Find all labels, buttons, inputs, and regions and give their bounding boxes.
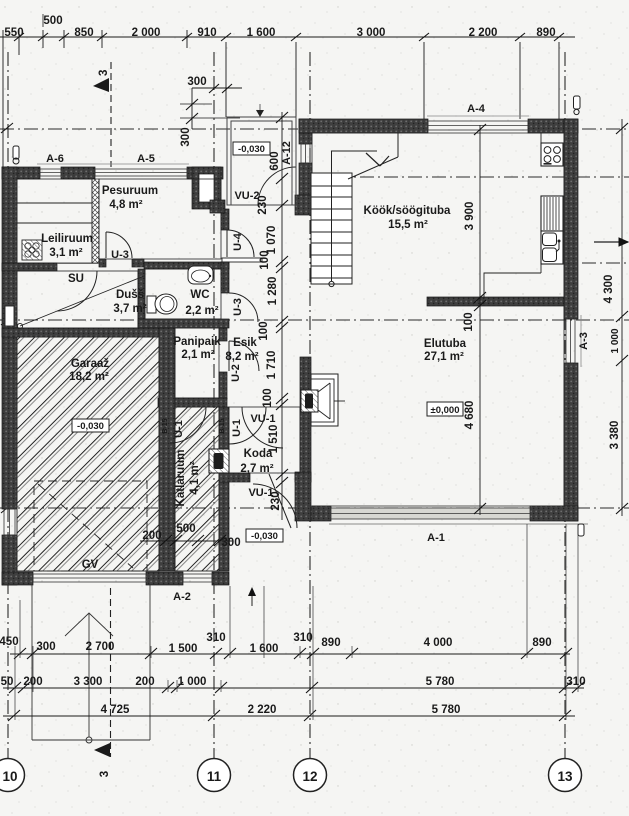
svg-text:1 500: 1 500 xyxy=(169,643,198,655)
svg-text:850: 850 xyxy=(74,27,93,39)
svg-text:-0,030: -0,030 xyxy=(238,144,265,155)
svg-text:1 510: 1 510 xyxy=(268,425,280,454)
svg-text:310: 310 xyxy=(293,632,312,644)
svg-text:1 710: 1 710 xyxy=(266,351,278,380)
svg-text:1 000: 1 000 xyxy=(610,328,621,353)
svg-text:2 200: 2 200 xyxy=(469,27,498,39)
svg-text:300: 300 xyxy=(180,127,192,146)
svg-text:U-1: U-1 xyxy=(231,419,243,437)
svg-text:U-1: U-1 xyxy=(173,420,185,438)
svg-text:100: 100 xyxy=(258,321,270,340)
svg-text:1 070: 1 070 xyxy=(266,226,278,255)
svg-text:12: 12 xyxy=(302,769,317,784)
svg-text:100: 100 xyxy=(463,312,475,331)
svg-text:U-4: U-4 xyxy=(232,232,244,251)
svg-text:2,2 m²: 2,2 m² xyxy=(185,305,218,317)
svg-text:5 780: 5 780 xyxy=(426,676,455,688)
svg-text:U-3: U-3 xyxy=(111,249,129,261)
svg-text:A-2: A-2 xyxy=(173,591,191,603)
svg-text:2,7 m²: 2,7 m² xyxy=(240,463,273,475)
svg-text:27,1 m²: 27,1 m² xyxy=(424,351,464,363)
svg-text:450: 450 xyxy=(0,636,19,648)
svg-text:15,5 m²: 15,5 m² xyxy=(388,219,428,231)
svg-text:1 000: 1 000 xyxy=(178,676,207,688)
svg-text:8,2 m²: 8,2 m² xyxy=(225,351,258,363)
svg-text:890: 890 xyxy=(321,637,340,649)
svg-text:50: 50 xyxy=(1,676,14,688)
svg-text:A-3: A-3 xyxy=(578,332,590,350)
svg-text:Elutuba: Elutuba xyxy=(424,338,467,350)
svg-text:A-1: A-1 xyxy=(427,532,445,544)
svg-text:910: 910 xyxy=(197,27,216,39)
svg-text:500: 500 xyxy=(176,523,195,535)
svg-text:200: 200 xyxy=(142,530,161,542)
svg-text:11: 11 xyxy=(207,769,222,784)
svg-text:Katlaruum: Katlaruum xyxy=(175,450,187,507)
svg-text:600: 600 xyxy=(269,151,281,170)
svg-text:550: 550 xyxy=(4,27,23,39)
svg-text:5 780: 5 780 xyxy=(432,704,461,716)
svg-text:3 900: 3 900 xyxy=(464,202,476,231)
svg-text:500: 500 xyxy=(43,15,62,27)
svg-text:300: 300 xyxy=(221,537,240,549)
svg-text:310: 310 xyxy=(206,632,225,644)
svg-text:200: 200 xyxy=(135,676,154,688)
svg-text:3 300: 3 300 xyxy=(74,676,103,688)
svg-text:3: 3 xyxy=(98,70,110,76)
svg-text:890: 890 xyxy=(532,637,551,649)
svg-text:2,1 m²: 2,1 m² xyxy=(181,349,214,361)
svg-text:B-15: B-15 xyxy=(219,418,226,433)
svg-text:4 725: 4 725 xyxy=(101,704,130,716)
svg-text:4,1 m²: 4,1 m² xyxy=(189,461,201,494)
svg-text:2 000: 2 000 xyxy=(132,27,161,39)
svg-text:WC: WC xyxy=(190,289,209,301)
svg-text:GV: GV xyxy=(82,559,99,571)
svg-text:3 000: 3 000 xyxy=(357,27,386,39)
svg-text:Köök/söögituba: Köök/söögituba xyxy=(364,205,451,217)
svg-text:230: 230 xyxy=(257,195,269,214)
svg-text:10: 10 xyxy=(2,769,17,784)
svg-text:300: 300 xyxy=(36,641,55,653)
svg-text:-0,030: -0,030 xyxy=(77,421,104,432)
svg-text:230: 230 xyxy=(270,491,282,510)
svg-text:Panipaik: Panipaik xyxy=(173,336,221,348)
svg-text:-0,030: -0,030 xyxy=(251,531,278,542)
svg-text:Garaaž: Garaaž xyxy=(71,358,110,370)
svg-text:VU-1: VU-1 xyxy=(250,413,275,425)
svg-text:3,1 m²: 3,1 m² xyxy=(49,247,82,259)
svg-text:A-5: A-5 xyxy=(137,153,155,165)
svg-text:4 300: 4 300 xyxy=(603,275,615,304)
svg-text:3: 3 xyxy=(99,771,111,777)
svg-text:U-3: U-3 xyxy=(232,298,244,316)
svg-text:U-2: U-2 xyxy=(230,364,242,382)
svg-text:A-4: A-4 xyxy=(467,103,486,115)
svg-text:4 680: 4 680 xyxy=(464,401,476,430)
svg-text:1 280: 1 280 xyxy=(267,277,279,306)
svg-text:300: 300 xyxy=(187,76,206,88)
svg-text:A-6: A-6 xyxy=(46,153,64,165)
svg-text:13: 13 xyxy=(557,769,573,784)
svg-text:SU: SU xyxy=(68,273,84,285)
svg-text:Pesuruum: Pesuruum xyxy=(102,185,158,197)
svg-text:3 380: 3 380 xyxy=(609,421,621,450)
svg-text:4,8 m²: 4,8 m² xyxy=(109,199,142,211)
svg-text:310: 310 xyxy=(566,676,585,688)
svg-text:Esik: Esik xyxy=(233,337,257,349)
svg-text:A-12: A-12 xyxy=(281,141,293,165)
svg-text:B-15: B-15 xyxy=(162,418,169,433)
svg-text:18,2 m²: 18,2 m² xyxy=(69,371,109,383)
svg-text:VU-2: VU-2 xyxy=(234,190,259,202)
svg-text:890: 890 xyxy=(536,27,555,39)
svg-text:100: 100 xyxy=(262,388,274,407)
svg-text:Dušš: Dušš xyxy=(116,289,144,301)
svg-text:100: 100 xyxy=(259,250,271,269)
svg-text:3,7 m²: 3,7 m² xyxy=(113,303,146,315)
svg-text:Leiliruum: Leiliruum xyxy=(41,233,93,245)
svg-text:2 700: 2 700 xyxy=(86,641,115,653)
svg-text:2 220: 2 220 xyxy=(248,704,277,716)
svg-text:±0,000: ±0,000 xyxy=(431,405,460,416)
svg-text:1 600: 1 600 xyxy=(247,27,276,39)
svg-text:4 000: 4 000 xyxy=(424,637,453,649)
